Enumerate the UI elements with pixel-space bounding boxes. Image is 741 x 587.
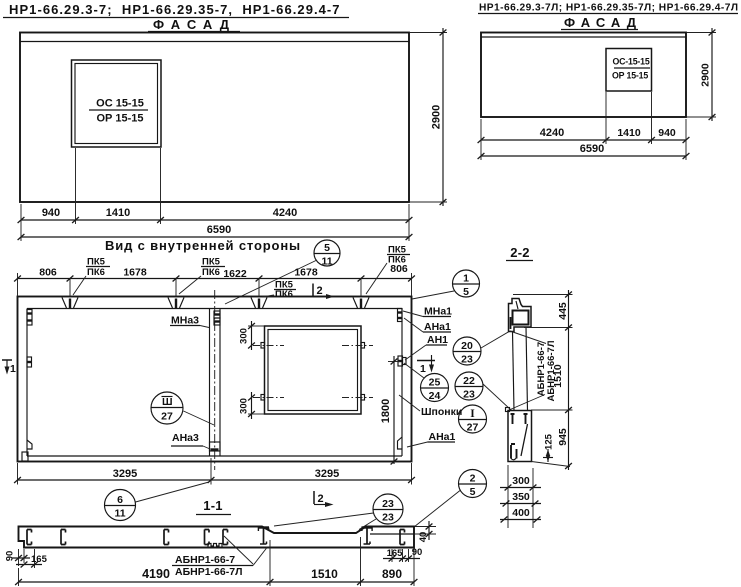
svg-text:1: 1 [10, 363, 16, 375]
svg-text:1800: 1800 [380, 399, 392, 423]
svg-text:22: 22 [463, 375, 475, 387]
svg-text:2900: 2900 [700, 63, 712, 87]
svg-text:4240: 4240 [540, 127, 564, 139]
svg-text:23: 23 [463, 389, 475, 401]
svg-text:ПК6: ПК6 [87, 267, 105, 278]
svg-text:3295: 3295 [113, 468, 137, 480]
svg-text:АНа3: АНа3 [172, 432, 199, 444]
svg-text:1678: 1678 [294, 267, 318, 279]
svg-text:6: 6 [117, 494, 123, 506]
svg-text:23: 23 [382, 498, 394, 510]
svg-text:23: 23 [382, 512, 394, 524]
svg-text:АНа1: АНа1 [429, 431, 456, 443]
svg-text:ОС-15-15: ОС-15-15 [612, 57, 649, 67]
svg-text:ФАСАД: ФАСАД [153, 17, 236, 32]
svg-text:2: 2 [317, 285, 323, 297]
svg-text:300: 300 [239, 328, 250, 344]
svg-text:НР1-66.29.3-7; НР1-66.29.35-7: НР1-66.29.3-7; НР1-66.29.35-7, НР1-66.29… [9, 2, 341, 17]
svg-text:1: 1 [463, 273, 469, 285]
svg-text:2: 2 [470, 473, 476, 485]
svg-text:Вид с внутренней стороны: Вид с внутренней стороны [105, 238, 301, 253]
svg-text:11: 11 [114, 508, 125, 520]
svg-text:300: 300 [239, 398, 250, 414]
svg-text:МНа3: МНа3 [171, 315, 199, 327]
svg-text:445: 445 [557, 302, 569, 320]
svg-text:ПК5: ПК5 [202, 257, 221, 268]
svg-text:1410: 1410 [617, 127, 641, 139]
svg-text:3295: 3295 [315, 468, 339, 480]
svg-text:90: 90 [412, 547, 423, 558]
svg-text:1678: 1678 [123, 267, 147, 279]
svg-text:I: I [470, 408, 475, 420]
svg-text:ОС 15-15: ОС 15-15 [96, 98, 144, 110]
svg-text:2-2: 2-2 [510, 245, 529, 260]
svg-text:1510: 1510 [552, 364, 564, 388]
svg-text:ОР 15-15: ОР 15-15 [612, 71, 648, 81]
svg-text:АБНР1-66-7Л: АБНР1-66-7Л [175, 566, 242, 578]
svg-text:2900: 2900 [431, 105, 443, 129]
svg-text:1622: 1622 [223, 268, 247, 280]
svg-text:1-1: 1-1 [203, 498, 222, 513]
svg-text:НР1-66.29.3-7Л; НР1-66.29.35-7: НР1-66.29.3-7Л; НР1-66.29.35-7Л; НР1-66.… [479, 3, 738, 14]
svg-text:1410: 1410 [106, 207, 130, 219]
svg-text:4240: 4240 [273, 207, 297, 219]
svg-text:АНа1: АНа1 [424, 321, 451, 333]
svg-text:6590: 6590 [580, 143, 604, 155]
svg-text:ФАСАД: ФАСАД [564, 15, 642, 30]
svg-text:5: 5 [463, 286, 469, 298]
svg-text:Шпонки: Шпонки [421, 406, 462, 418]
svg-text:6590: 6590 [207, 224, 231, 236]
svg-text:165: 165 [31, 554, 48, 565]
svg-text:ПК6: ПК6 [388, 255, 406, 266]
svg-text:ПК5: ПК5 [87, 257, 106, 268]
svg-text:11: 11 [321, 256, 332, 268]
svg-text:940: 940 [42, 207, 60, 219]
svg-text:27: 27 [467, 422, 479, 434]
svg-text:806: 806 [39, 267, 57, 279]
svg-text:МНа1: МНа1 [424, 306, 452, 318]
svg-text:125: 125 [544, 433, 555, 450]
svg-text:23: 23 [461, 354, 473, 366]
svg-text:945: 945 [557, 428, 569, 446]
svg-text:5: 5 [324, 242, 330, 254]
svg-text:890: 890 [382, 567, 402, 581]
svg-text:400: 400 [512, 507, 530, 519]
svg-text:4190: 4190 [142, 567, 170, 581]
svg-text:40: 40 [418, 532, 429, 543]
svg-text:27: 27 [161, 411, 173, 423]
svg-text:2: 2 [318, 493, 324, 505]
svg-text:Ш: Ш [162, 396, 172, 408]
svg-text:940: 940 [658, 127, 676, 139]
svg-text:300: 300 [512, 475, 530, 487]
svg-text:20: 20 [461, 340, 473, 352]
svg-text:24: 24 [429, 390, 441, 402]
svg-text:АН1: АН1 [427, 334, 448, 346]
svg-text:ОР 15-15: ОР 15-15 [96, 113, 143, 125]
svg-text:1: 1 [420, 363, 426, 375]
svg-text:ПК6: ПК6 [202, 267, 220, 278]
svg-text:90: 90 [5, 551, 16, 562]
svg-text:ПК6: ПК6 [275, 289, 293, 300]
svg-text:АБНР1-66-7: АБНР1-66-7 [175, 554, 235, 566]
svg-text:5: 5 [470, 486, 476, 498]
svg-text:165: 165 [387, 548, 404, 559]
svg-text:1510: 1510 [311, 567, 338, 581]
svg-text:25: 25 [429, 377, 441, 389]
svg-text:350: 350 [512, 491, 530, 503]
